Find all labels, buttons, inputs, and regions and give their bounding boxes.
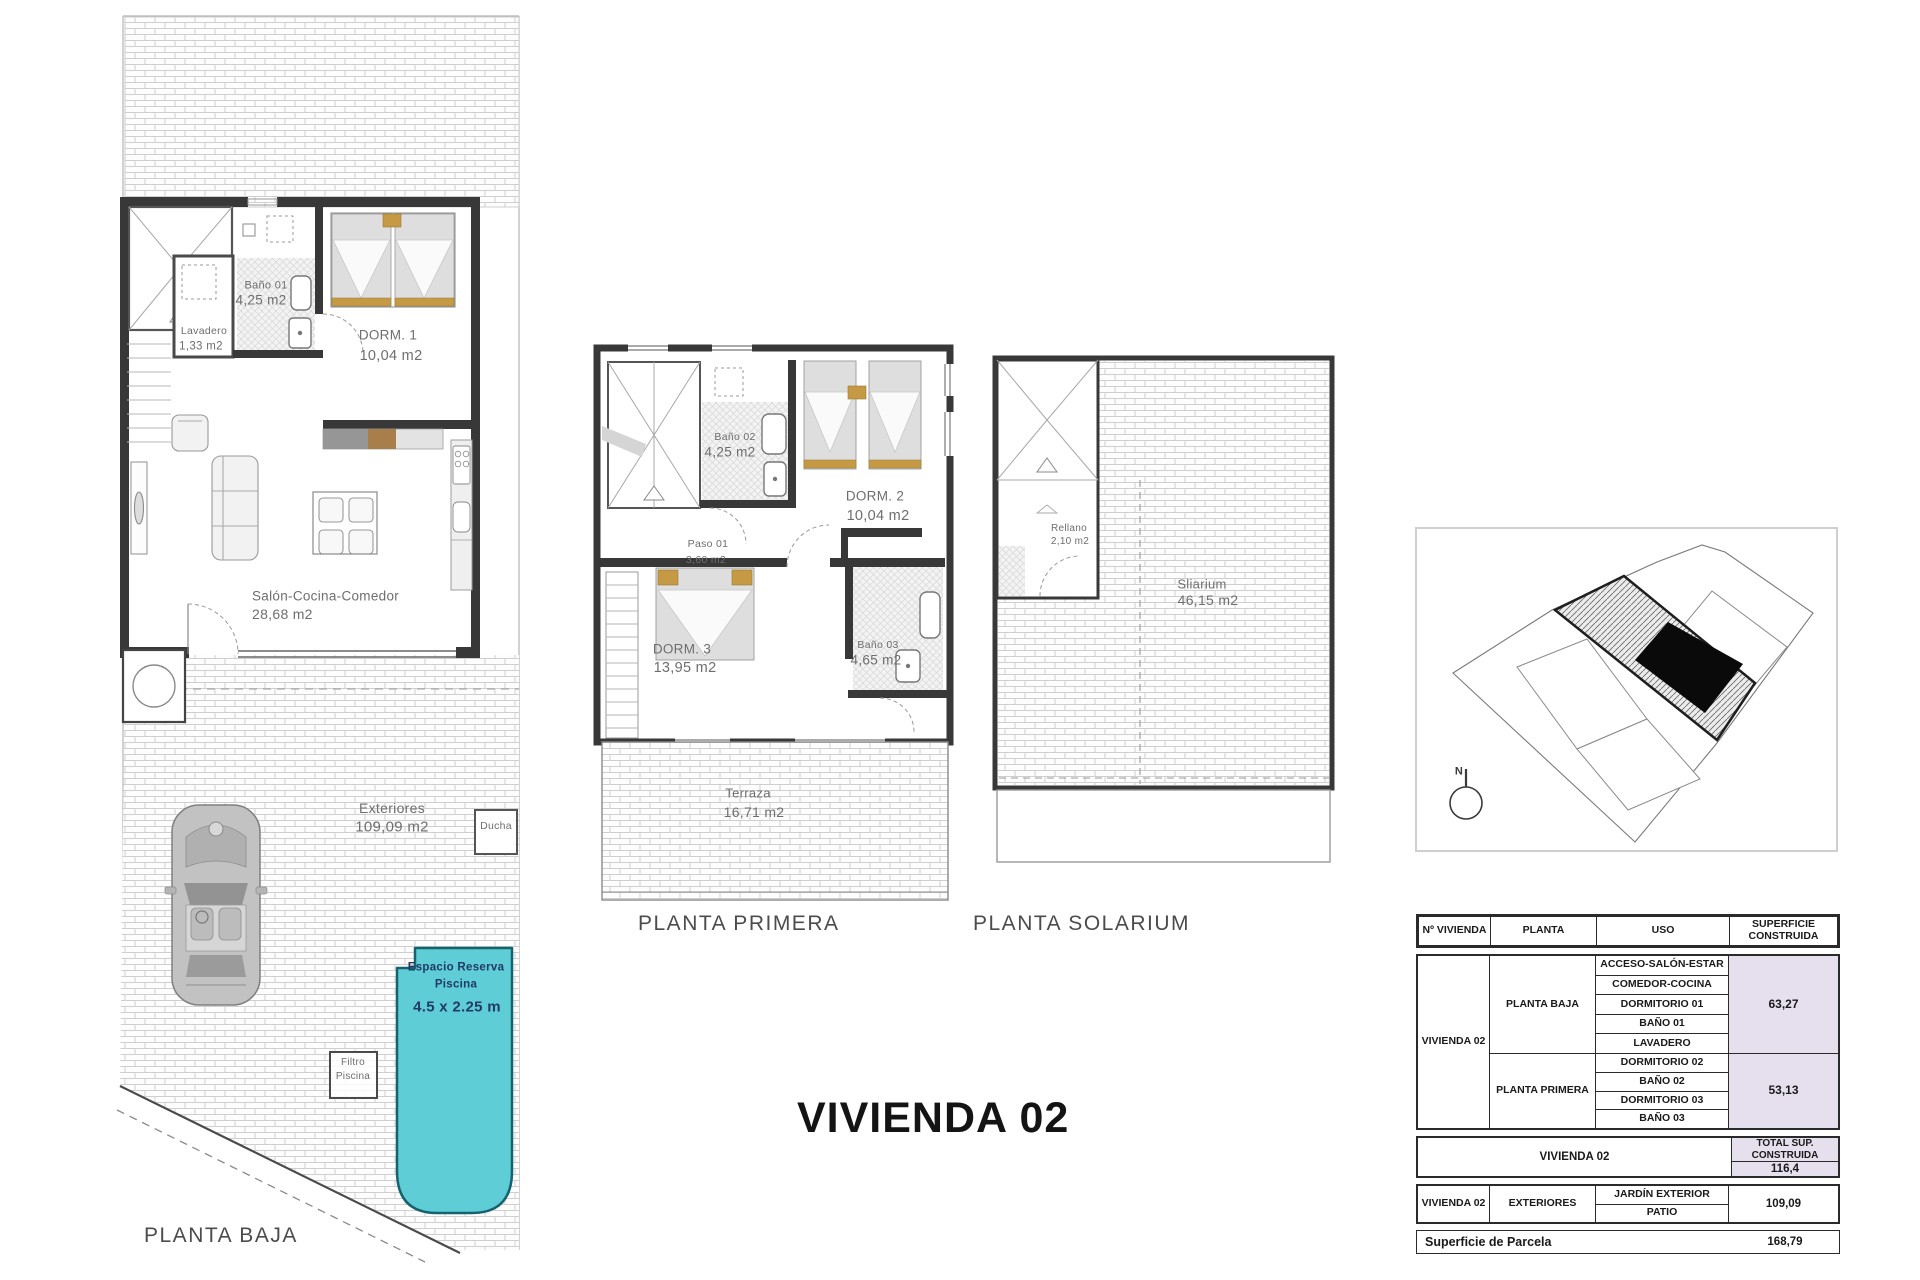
uso-row: DORMITORIO 03 <box>1596 1092 1728 1111</box>
title-planta-solarium: PLANTA SOLARIUM <box>973 912 1190 936</box>
cell-total-value: 116,4 <box>1732 1162 1838 1176</box>
title-planta-primera: PLANTA PRIMERA <box>638 912 840 936</box>
terraza <box>602 742 948 900</box>
group-planta-baja: PLANTA BAJA ACCESO-SALÓN-ESTAR COMEDOR-C… <box>1490 956 1838 1054</box>
cell-parcela-label: Superficie de Parcela <box>1417 1235 1731 1249</box>
header-superficie: SUPERFICIE CONSTRUIDA <box>1730 917 1837 945</box>
header-num-vivienda: Nº VIVIENDA <box>1419 917 1491 945</box>
dorm1-bed <box>331 213 455 307</box>
uso-row: BAÑO 02 <box>1596 1073 1728 1092</box>
cell-ext-superficie: 109,09 <box>1729 1186 1838 1222</box>
page-title: VIVIENDA 02 <box>797 1094 1069 1143</box>
label-dorm2-name: DORM. 2 <box>846 489 904 503</box>
label-ducha: Ducha <box>480 821 512 832</box>
label-bano01-area: 4,25 m2 <box>236 293 287 307</box>
car <box>165 805 267 1005</box>
label-dorm2-area: 10,04 m2 <box>847 509 910 524</box>
cell-superficie-primera: 53,13 <box>1729 1054 1838 1128</box>
title-planta-baja: PLANTA BAJA <box>144 1224 298 1248</box>
label-paso01-area: 3,60 m2 <box>686 555 726 566</box>
cell-total-header: TOTAL SUP. CONSTRUIDA <box>1732 1138 1838 1162</box>
table-header-row: Nº VIVIENDA PLANTA USO SUPERFICIE CONSTR… <box>1416 914 1840 948</box>
uso-row: PATIO <box>1596 1205 1728 1223</box>
stair-enclosure <box>997 360 1098 598</box>
uso-row: ACCESO-SALÓN-ESTAR <box>1596 956 1728 976</box>
site-map <box>1415 527 1838 852</box>
solarium-lower-terrace <box>997 790 1330 862</box>
planta-primera-drawing <box>590 340 960 915</box>
label-bano02-name: Baño 02 <box>714 432 755 443</box>
patio-top-brick <box>125 17 519 207</box>
group-planta-primera: PLANTA PRIMERA DORMITORIO 02 BAÑO 02 DOR… <box>1490 1054 1838 1128</box>
cell-planta-primera: PLANTA PRIMERA <box>1490 1054 1596 1128</box>
label-terraza-name: Terraza <box>725 787 770 800</box>
label-bano01-name: Baño 01 <box>244 281 287 292</box>
label-filtro-line1: Filtro <box>341 1058 365 1068</box>
table-exteriores-block: VIVIENDA 02 EXTERIORES JARDÍN EXTERIOR P… <box>1416 1184 1840 1224</box>
cell-total-vivienda: VIVIENDA 02 <box>1418 1138 1732 1176</box>
label-lavadero-name: Lavadero <box>181 326 227 337</box>
planta-baja-drawing <box>115 10 535 1272</box>
label-dorm1-area: 10,04 m2 <box>360 349 423 364</box>
uso-row: COMEDOR-COCINA <box>1596 976 1728 996</box>
cell-planta-baja: PLANTA BAJA <box>1490 956 1596 1053</box>
label-piscina-line2: Piscina <box>435 979 477 991</box>
cell-ext-planta: EXTERIORES <box>1490 1186 1596 1222</box>
label-solarium-area: 46,15 m2 <box>1178 593 1239 607</box>
stairs-first <box>602 362 700 508</box>
label-dorm3-area: 13,95 m2 <box>654 661 717 676</box>
label-piscina-line1: Espacio Reserva <box>408 962 505 974</box>
label-exteriores-area: 109,09 m2 <box>355 820 429 835</box>
label-rellano-area: 2,10 m2 <box>1051 537 1089 547</box>
cell-ext-vivienda: VIVIENDA 02 <box>1418 1186 1490 1222</box>
header-planta: PLANTA <box>1491 917 1597 945</box>
label-paso01-name: Paso 01 <box>688 539 729 550</box>
uso-row: DORMITORIO 02 <box>1596 1054 1728 1073</box>
label-lavadero-area: 1,33 m2 <box>179 341 223 353</box>
cell-parcela-value: 168,79 <box>1731 1236 1839 1248</box>
planta-solarium-drawing <box>985 350 1345 870</box>
label-dorm3-name: DORM. 3 <box>653 642 711 656</box>
label-salon-area: 28,68 m2 <box>252 607 313 621</box>
uso-row: JARDÍN EXTERIOR <box>1596 1186 1728 1205</box>
label-terraza-area: 16,71 m2 <box>724 805 785 819</box>
washer-box <box>123 650 185 722</box>
label-dorm1-name: DORM. 1 <box>359 328 417 342</box>
uso-row: DORMITORIO 01 <box>1596 995 1728 1015</box>
label-salon-name: Salón-Cocina-Comedor <box>252 589 399 603</box>
label-filtro-line2: Piscina <box>336 1072 370 1082</box>
label-bano02-area: 4,25 m2 <box>705 445 756 459</box>
uso-row: LAVADERO <box>1596 1034 1728 1053</box>
label-solarium-name: Sliarium <box>1177 578 1226 591</box>
kitchen <box>323 420 480 590</box>
label-rellano-name: Rellano <box>1051 524 1087 534</box>
uso-row: BAÑO 01 <box>1596 1015 1728 1035</box>
cell-vivienda02: VIVIENDA 02 <box>1418 956 1490 1128</box>
label-piscina-line3: 4.5 x 2.25 m <box>413 1000 501 1015</box>
table-main-block: VIVIENDA 02 PLANTA BAJA ACCESO-SALÓN-EST… <box>1416 954 1840 1130</box>
label-exteriores-name: Exteriores <box>359 801 425 815</box>
table-total-block: VIVIENDA 02 TOTAL SUP. CONSTRUIDA 116,4 <box>1416 1136 1840 1178</box>
cell-superficie-baja: 63,27 <box>1729 956 1838 1053</box>
header-uso: USO <box>1597 917 1730 945</box>
label-bano03-name: Baño 03 <box>857 640 898 651</box>
uso-row: BAÑO 03 <box>1596 1110 1728 1128</box>
table-parcela-row: Superficie de Parcela 168,79 <box>1416 1230 1840 1254</box>
compass-n-label: N <box>1455 767 1463 778</box>
ducha-box <box>475 810 517 854</box>
label-bano03-area: 4,65 m2 <box>851 653 902 667</box>
